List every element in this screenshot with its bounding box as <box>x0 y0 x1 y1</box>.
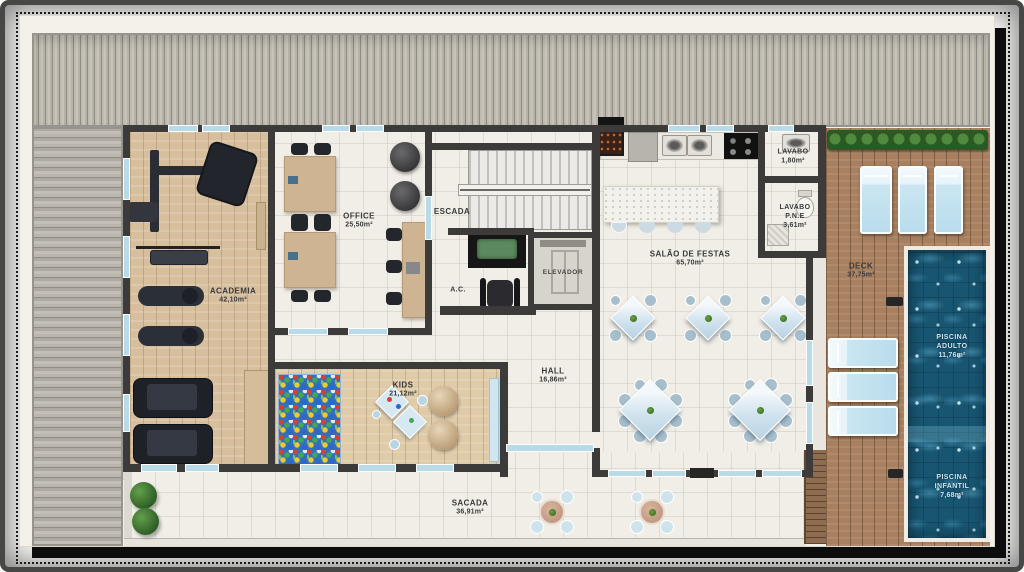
wall-gym-right <box>268 125 275 472</box>
window <box>652 470 686 477</box>
floor-plan-canvas: ACADEMIA 42,10m² OFFICE 25,50m² ESCADA A… <box>0 0 1024 572</box>
room-label-kids: KIDS 21,12m² <box>389 381 416 400</box>
window <box>425 196 432 240</box>
kitchen-sink <box>687 135 712 156</box>
table-plant <box>780 315 787 322</box>
cooktop <box>724 133 758 159</box>
wall-kids-top <box>268 362 508 369</box>
room-label-lavabo: LAVABO 1,80m² <box>778 148 809 166</box>
sun-lounger <box>828 406 898 436</box>
window <box>141 464 177 472</box>
room-label-academia: ACADEMIA 42,10m² <box>210 287 256 306</box>
room-label-ac: A.C. <box>450 287 466 296</box>
chair <box>685 295 696 306</box>
parapet-left <box>124 472 132 541</box>
room-label-elevador: ELEVADOR <box>543 269 583 277</box>
window <box>718 470 756 477</box>
planter-bush <box>130 482 157 509</box>
gym-wall-ledge <box>256 202 266 250</box>
bench-press-bar <box>136 246 220 249</box>
table-plant <box>649 509 656 516</box>
hall-window-wall <box>506 444 594 452</box>
window <box>202 125 230 132</box>
window <box>806 402 813 444</box>
ball-pit <box>278 374 341 468</box>
window <box>300 464 338 472</box>
wine-cabinet <box>597 130 624 156</box>
wall-lavabo-bottom <box>758 251 826 258</box>
wall-ac-bottom <box>440 306 536 315</box>
window <box>668 125 700 132</box>
wall-salao-left-upper <box>592 125 600 432</box>
wall-elevator-top <box>528 232 598 238</box>
window <box>288 328 328 335</box>
chair <box>760 295 771 306</box>
treadmill-belt <box>147 430 197 456</box>
table-plant <box>647 407 654 414</box>
sacada-table <box>626 486 678 538</box>
dining-table-8 <box>613 373 687 447</box>
table-plant <box>630 315 637 322</box>
bike-flywheel <box>182 328 198 344</box>
sun-lounger <box>828 372 898 402</box>
window <box>168 125 198 132</box>
hedge-row <box>827 130 988 150</box>
cooktop-burners <box>730 138 736 144</box>
lat-machine-seat <box>128 202 158 222</box>
window <box>416 464 454 472</box>
room-label-office: OFFICE 25,50m² <box>343 212 375 231</box>
kids-chair <box>372 410 381 419</box>
pne-toilet-tank <box>798 190 812 197</box>
window <box>356 125 384 132</box>
table-plant <box>705 315 712 322</box>
sun-lounger <box>828 338 898 368</box>
room-label-deck: DECK 37,75m² <box>847 262 874 281</box>
office-desk <box>284 156 336 212</box>
chair <box>631 491 643 503</box>
chair <box>610 295 621 306</box>
desk-chairs <box>291 219 308 231</box>
deck-drain <box>886 297 903 306</box>
room-label-piscina-infantil: PISCINA INFANTIL 7,68m² <box>935 474 970 500</box>
window <box>322 125 350 132</box>
wall-lavabo-divider <box>758 176 825 183</box>
window <box>806 340 813 386</box>
room-label-salao: SALÃO DE FESTAS 65,70m² <box>650 250 731 269</box>
kitchen-cabinet <box>628 132 658 162</box>
bean-bag <box>428 420 458 450</box>
deck-side-strip <box>813 258 826 450</box>
pool-step-band <box>908 426 986 442</box>
window <box>123 314 130 356</box>
room-label-lavabo-pne: LAVABO P.N.E 3,61m² <box>780 204 811 230</box>
window <box>608 470 646 477</box>
window <box>123 236 130 278</box>
desk-chairs <box>291 143 308 155</box>
sun-lounger <box>860 166 892 234</box>
roof-top-band <box>32 33 990 127</box>
wall-building-right-top <box>818 125 826 258</box>
wall-stair-bottom <box>448 228 534 235</box>
counter-chairs <box>386 228 402 241</box>
bean-bag <box>428 386 458 416</box>
plan-sheet: ACADEMIA 42,10m² OFFICE 25,50m² ESCADA A… <box>20 16 994 546</box>
window <box>762 470 802 477</box>
window <box>768 125 794 132</box>
sun-lounger <box>934 166 963 234</box>
roof-left-band <box>32 127 123 546</box>
room-label-escada: ESCADA <box>434 207 470 217</box>
office-armchair <box>390 142 420 172</box>
counter-monitor <box>406 262 420 274</box>
laptop <box>288 176 298 184</box>
window <box>123 158 130 200</box>
kitchen-island <box>603 186 719 223</box>
room-label-sacada: SACADA 36,91m² <box>452 499 489 518</box>
office-desk <box>284 232 336 288</box>
salao-door <box>690 468 714 478</box>
dining-table-4 <box>681 291 735 345</box>
room-label-hall: HALL 16,86m² <box>539 367 566 386</box>
wheelchair-seat <box>487 280 513 308</box>
wall-elevator-left <box>528 232 534 310</box>
ac-green-panel <box>477 239 517 259</box>
dining-table-4 <box>606 291 660 345</box>
table-plant <box>549 509 556 516</box>
sun-lounger <box>898 166 927 234</box>
wall-stair-top <box>432 143 598 150</box>
chair <box>531 491 543 503</box>
window <box>123 394 130 432</box>
dining-table-4 <box>756 291 810 345</box>
dining-table-8 <box>723 373 797 447</box>
laptop <box>288 252 298 260</box>
wall-kids-right <box>500 362 508 477</box>
wall-elevator-bottom <box>528 304 598 310</box>
room-label-piscina-adulto: PISCINA ADULTO 11,76m² <box>936 334 967 360</box>
table-plant <box>757 407 764 414</box>
wall-lavabo-left <box>758 125 765 258</box>
elevator-machine-bar <box>540 240 586 247</box>
kitchen-sink <box>662 135 687 156</box>
deck-drain <box>888 469 903 478</box>
kids-toy-shelf <box>489 378 499 462</box>
bench-press-pad <box>150 250 208 265</box>
bike-flywheel <box>182 288 198 304</box>
planter-bush <box>132 508 159 535</box>
window <box>185 464 219 472</box>
window <box>706 125 734 132</box>
treadmill-belt <box>147 384 197 410</box>
stair-rail <box>460 189 590 191</box>
parapet-bottom <box>124 538 806 546</box>
window <box>358 464 396 472</box>
office-armchair <box>390 181 420 211</box>
sacada-table <box>526 486 578 538</box>
window <box>348 328 388 335</box>
